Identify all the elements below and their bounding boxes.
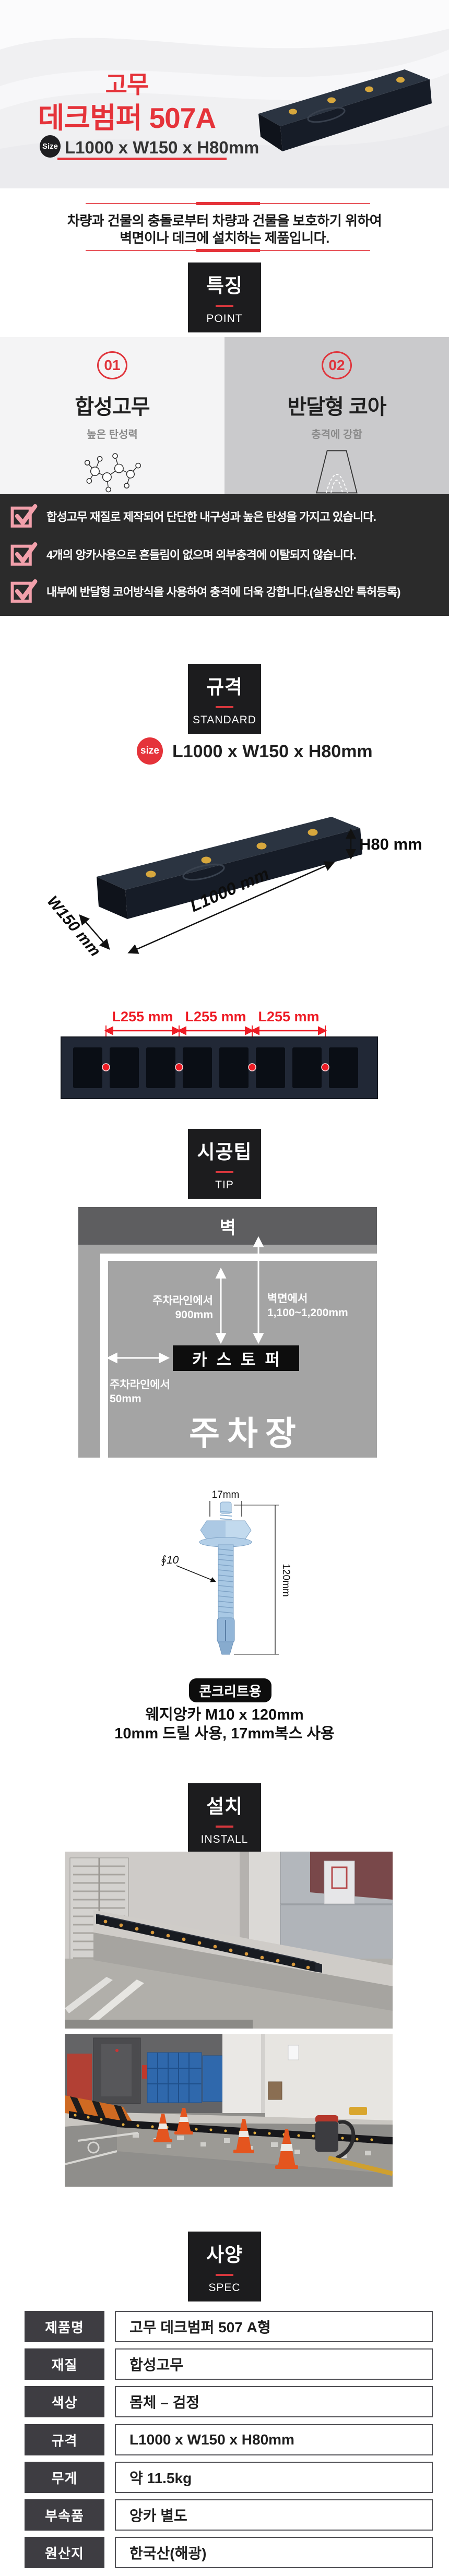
section-title: 규격 xyxy=(206,671,243,699)
dim-height-label: H80 mm xyxy=(359,835,422,853)
bolt-diameter-dim: ∮10 xyxy=(161,1554,179,1566)
distance-from-wall-label: 벽면에서 1,100~1,200mm xyxy=(267,1292,374,1320)
spec-row-value: 합성고무 xyxy=(115,2348,433,2380)
installation-diagram: 벽 주차라인에서 900mm 벽면에서 1,100~1,200mm 카스토퍼 주… xyxy=(78,1207,377,1458)
section-header-spec: 사양 SPEC xyxy=(188,2232,261,2301)
spec-row-value: L1000 x W150 x H80mm xyxy=(115,2424,433,2455)
check-item: 4개의 앙카사용으로 흔들림이 없으며 외부충격에 이탈되지 않습니다. xyxy=(10,540,443,568)
section-subtitle: INSTALL xyxy=(201,1833,249,1846)
feature-desc: 충격에 강함 xyxy=(311,426,362,441)
section-header-point: 특징 POINT xyxy=(188,263,261,332)
section-header-tip: 시공팁 TIP xyxy=(188,1129,261,1199)
install-photo-dock xyxy=(65,2034,393,2187)
spec-row-label: 색상 xyxy=(25,2386,104,2417)
spec-row-value: 앙카 별도 xyxy=(115,2499,433,2531)
section-header-standard: 규격 STANDARD xyxy=(188,664,261,734)
section-title: 특징 xyxy=(206,270,243,298)
spec-row-value: 몸체 – 검정 xyxy=(115,2386,433,2417)
bolt-width-dim: 17mm xyxy=(212,1489,240,1500)
check-item: 내부에 반달형 코어방식을 사용하여 충격에 더욱 강합니다.(실용신안 특허등… xyxy=(10,577,443,605)
section-subtitle: STANDARD xyxy=(193,714,256,726)
feature-panel-core: 02 반달형 코아 충격에 강함 xyxy=(224,337,449,494)
molecule-icon xyxy=(78,448,147,494)
spec-row-label: 부속품 xyxy=(25,2499,104,2531)
spec-row-value: 약 11.5kg xyxy=(115,2462,433,2493)
red-dash xyxy=(216,706,233,708)
spec-row-value: 한국산(해광) xyxy=(115,2537,433,2568)
intro-line1: 차량과 건물의 충돌로부터 차량과 건물을 보호하기 위하여 xyxy=(0,210,449,230)
check-text: 4개의 앙카사용으로 흔들림이 없으며 외부충격에 이탈되지 않습니다. xyxy=(46,546,356,563)
dim-width-label: W150 mm xyxy=(47,893,104,960)
standard-size-value: L1000 x W150 x H80mm xyxy=(172,742,373,762)
check-text: 합성고무 재질로 제작되어 단단한 내구성과 높은 탄성을 가지고 있습니다. xyxy=(46,508,376,524)
checklist-section: 합성고무 재질로 제작되어 단단한 내구성과 높은 탄성을 가지고 있습니다. … xyxy=(0,494,449,616)
checkbox-icon xyxy=(10,503,38,530)
half-moon-core-icon xyxy=(305,448,368,494)
offset-label: 주차라인에서 50mm xyxy=(110,1378,214,1406)
section-title: 설치 xyxy=(206,1791,243,1819)
spec-row-value: 고무 데크범퍼 507 A형 xyxy=(115,2311,433,2342)
checkbox-icon xyxy=(10,578,38,605)
section-subtitle: TIP xyxy=(215,1179,234,1191)
spec-row-label: 제품명 xyxy=(25,2311,104,2342)
anchor-bolt-illustration: 17mm ∮10 120mm xyxy=(146,1486,303,1675)
intro-line2: 벽면이나 데크에 설치하는 제품입니다. xyxy=(0,228,449,247)
check-item: 합성고무 재질로 제작되어 단단한 내구성과 높은 탄성을 가지고 있습니다. xyxy=(10,502,443,530)
install-photo-wall xyxy=(65,1852,393,2029)
product-title-line2: 데크범퍼 507A xyxy=(15,94,239,136)
spec-row-label: 규격 xyxy=(25,2424,104,2455)
section-subtitle: SPEC xyxy=(208,2282,240,2294)
check-text: 내부에 반달형 코어방식을 사용하여 충격에 더욱 강합니다.(실용신안 특허등… xyxy=(46,583,400,600)
parking-lot-label: 주차장 xyxy=(108,1407,377,1455)
section-title: 시공팁 xyxy=(197,1136,252,1164)
anchor-spec-line2: 10mm 드릴 사용, 17mm복스 사용 xyxy=(0,1721,449,1743)
feature-title: 합성고무 xyxy=(75,390,149,420)
car-stopper-label: 카스토퍼 xyxy=(173,1345,299,1371)
spec-row-label: 무게 xyxy=(25,2462,104,2493)
product-detail-page: 고무 데크범퍼 507A Size L1000 x W150 x H80mm 차… xyxy=(0,0,449,2576)
pitch-label: L255 mm xyxy=(258,1010,319,1024)
red-dash xyxy=(216,2274,233,2276)
distance-from-line-label: 주차라인에서 900mm xyxy=(131,1294,213,1322)
feature-panel-rubber: 01 합성고무 높은 탄성력 xyxy=(0,337,224,494)
divider-bottom-thick xyxy=(196,249,260,252)
red-dash xyxy=(216,1826,233,1828)
feature-desc: 높은 탄성력 xyxy=(87,426,138,441)
section-title: 사양 xyxy=(206,2239,243,2267)
red-dash xyxy=(216,305,233,307)
feature-title: 반달형 코아 xyxy=(287,390,386,420)
size-value: L1000 x W150 x H80mm xyxy=(65,138,259,158)
pitch-label: L255 mm xyxy=(185,1010,246,1024)
size-badge: Size xyxy=(40,135,61,158)
feature-panels: 01 합성고무 높은 탄성력 02 반달형 코아 xyxy=(0,337,449,494)
feature-number: 02 xyxy=(322,351,352,379)
divider-top-thick xyxy=(196,202,260,205)
product-photo xyxy=(248,52,446,157)
size-badge-red: size xyxy=(137,737,163,765)
concrete-use-badge: 콘크리트용 xyxy=(189,1678,271,1702)
size-underline xyxy=(57,158,227,160)
pitch-label: L255 mm xyxy=(112,1010,173,1024)
feature-number: 01 xyxy=(97,351,127,379)
section-header-install: 설치 INSTALL xyxy=(188,1783,261,1853)
bolt-length-dim: 120mm xyxy=(280,1564,291,1596)
checkbox-icon xyxy=(10,541,38,568)
red-dash xyxy=(216,1171,233,1173)
spec-row-label: 재질 xyxy=(25,2348,104,2380)
spec-row-label: 원산지 xyxy=(25,2537,104,2568)
section-subtitle: POINT xyxy=(206,313,242,325)
bottom-view-illustration: L255 mm L255 mm L255 mm xyxy=(52,1010,386,1104)
dimension-illustration: H80 mm L1000 mm W150 mm xyxy=(47,765,433,979)
